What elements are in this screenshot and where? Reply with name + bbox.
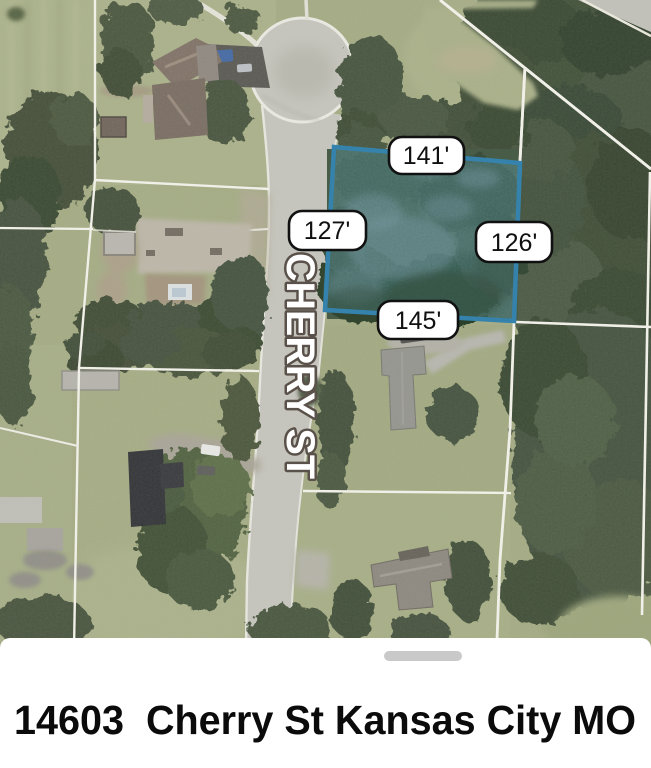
svg-text:141': 141' [403,142,449,170]
svg-text:CHERRY ST: CHERRY ST [278,253,322,479]
svg-text:145': 145' [395,307,441,335]
svg-text:127': 127' [304,217,350,245]
svg-text:14603 Cherry St Kansas City M: 14603 Cherry St Kansas City MO [14,697,636,743]
svg-text:126': 126' [491,229,537,257]
